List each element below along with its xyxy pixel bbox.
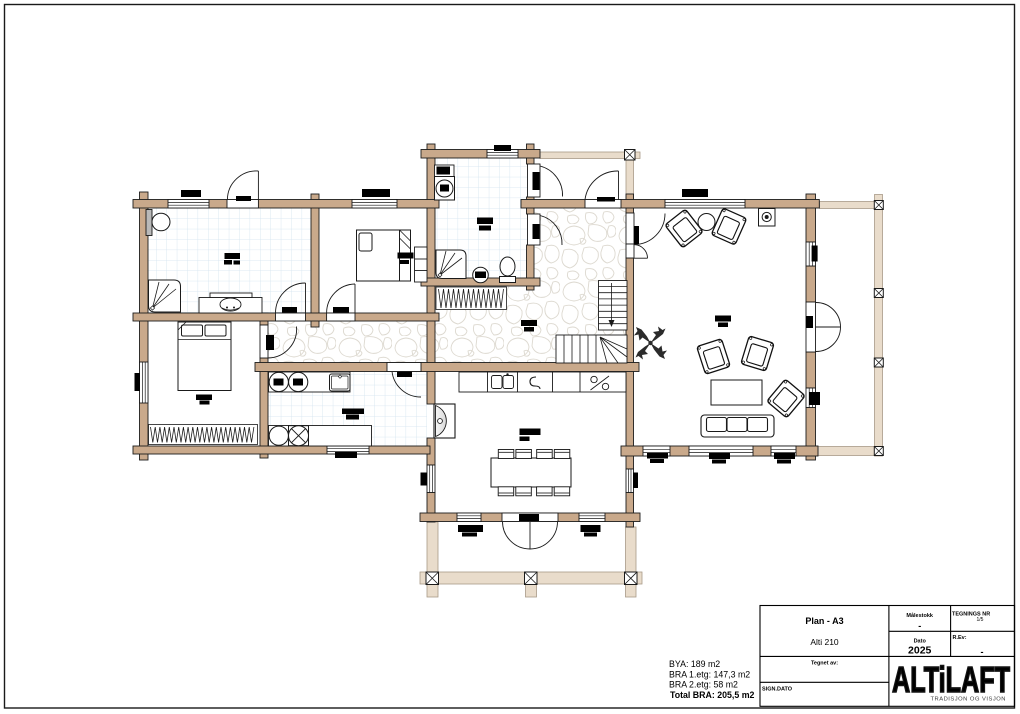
svg-text:BRA 2.etg: 58 m2: BRA 2.etg: 58 m2 — [669, 680, 738, 690]
svg-text:1/5: 1/5 — [977, 617, 984, 623]
svg-text:-: - — [918, 621, 921, 631]
svg-text:TEGNINGS NR: TEGNINGS NR — [952, 612, 990, 618]
svg-text:2025: 2025 — [908, 645, 932, 657]
svg-text:Total BRA: 205,5 m2: Total BRA: 205,5 m2 — [670, 690, 755, 700]
svg-text:Alti 210: Alti 210 — [810, 637, 839, 647]
svg-text:ALTiLAFT: ALTiLAFT — [892, 659, 1010, 700]
svg-text:TRADISJON OG VISJON: TRADISJON OG VISJON — [930, 697, 1006, 703]
svg-text:Plan - A3: Plan - A3 — [805, 616, 843, 626]
svg-text:-: - — [981, 647, 984, 657]
svg-text:SIGN.DATO: SIGN.DATO — [762, 687, 793, 693]
svg-text:BRA 1.etg: 147,3 m2: BRA 1.etg: 147,3 m2 — [669, 669, 750, 679]
svg-text:Tegnet av:: Tegnet av: — [811, 661, 838, 667]
svg-text:Målestokk: Målestokk — [906, 612, 934, 619]
svg-text:R.Ev:: R.Ev: — [953, 635, 967, 641]
svg-text:BYA: 189 m2: BYA: 189 m2 — [669, 659, 720, 669]
